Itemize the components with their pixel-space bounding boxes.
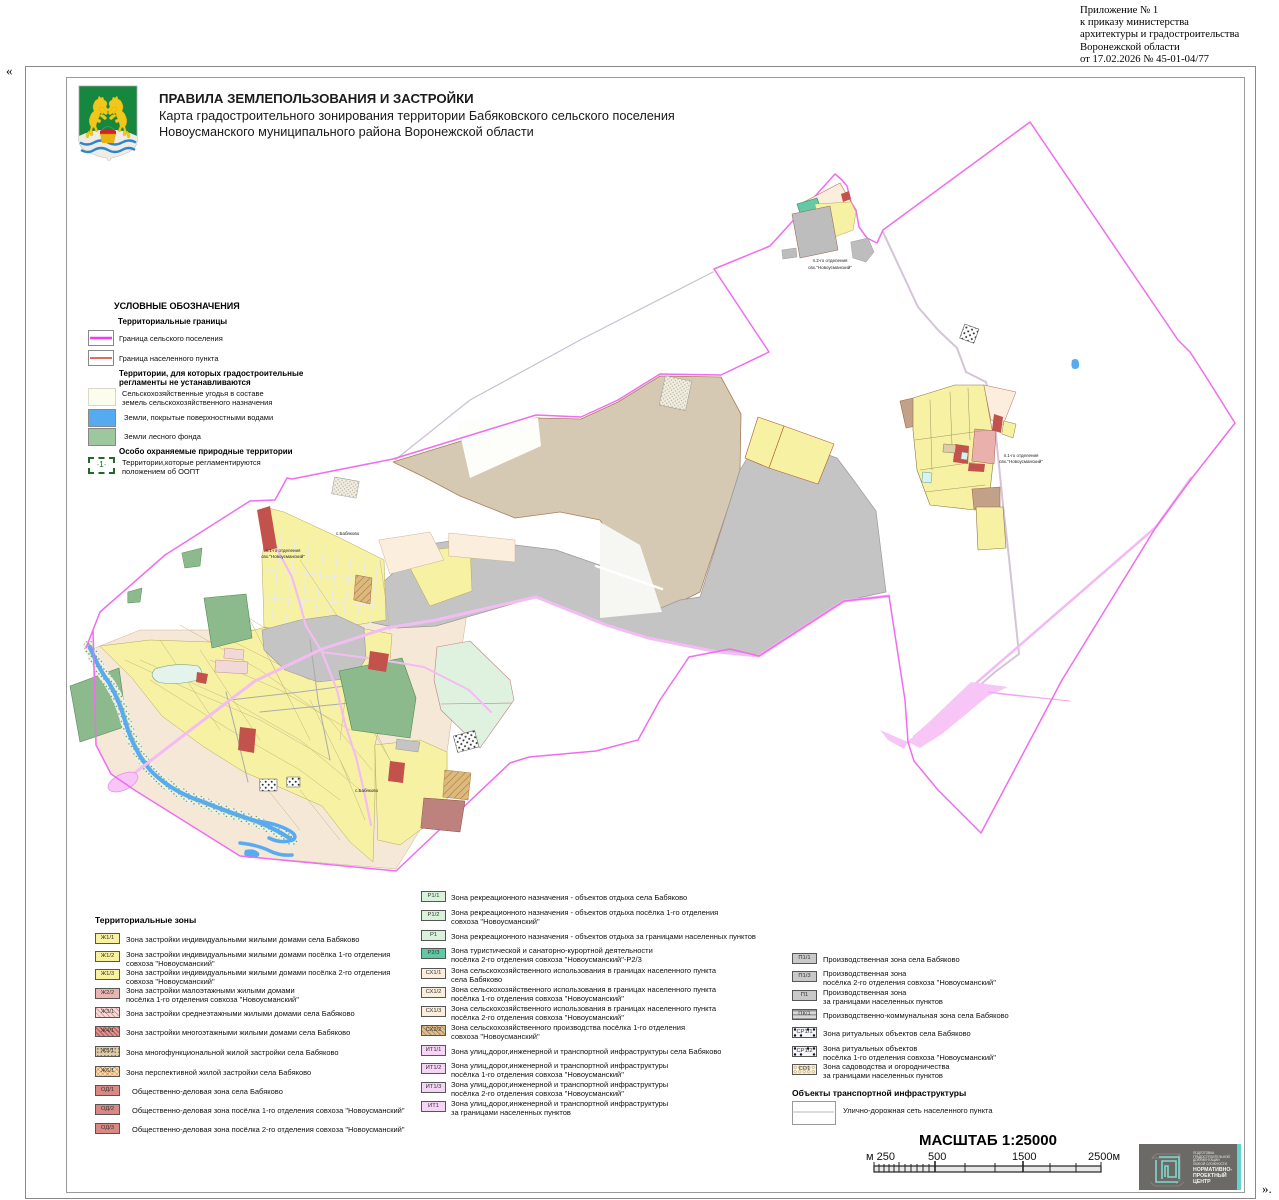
svg-text:с.Бабяково: с.Бабяково (355, 788, 379, 793)
svg-text:п.1-го отделения: п.1-го отделения (266, 548, 301, 553)
svg-text:п.1-го отделения: п.1-го отделения (1004, 453, 1039, 458)
svg-text:свх."Новоусманский": свх."Новоусманский" (261, 553, 305, 559)
svg-text:свх."Новоусманский": свх."Новоусманский" (999, 458, 1043, 464)
svg-text:с.Бабяково: с.Бабяково (336, 531, 360, 536)
svg-text:1500: 1500 (1012, 1151, 1036, 1163)
svg-text:м 250: м 250 (866, 1151, 895, 1163)
svg-text:свх."Новоусманский": свх."Новоусманский" (808, 264, 852, 270)
svg-text:2500м: 2500м (1088, 1151, 1120, 1163)
svg-text:п.2-го отделения: п.2-го отделения (813, 258, 848, 263)
svg-text:500: 500 (928, 1151, 946, 1163)
